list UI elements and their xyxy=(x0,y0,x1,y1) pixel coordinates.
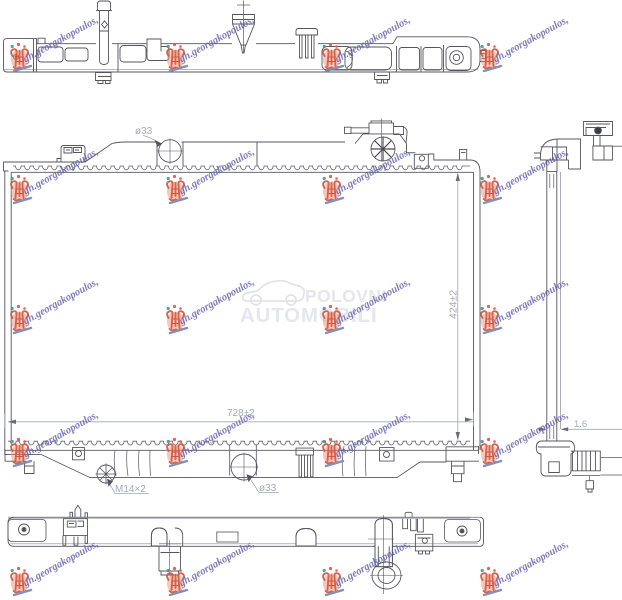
svg-text:1.6: 1.6 xyxy=(574,419,587,430)
svg-text:424±2: 424±2 xyxy=(448,290,460,319)
